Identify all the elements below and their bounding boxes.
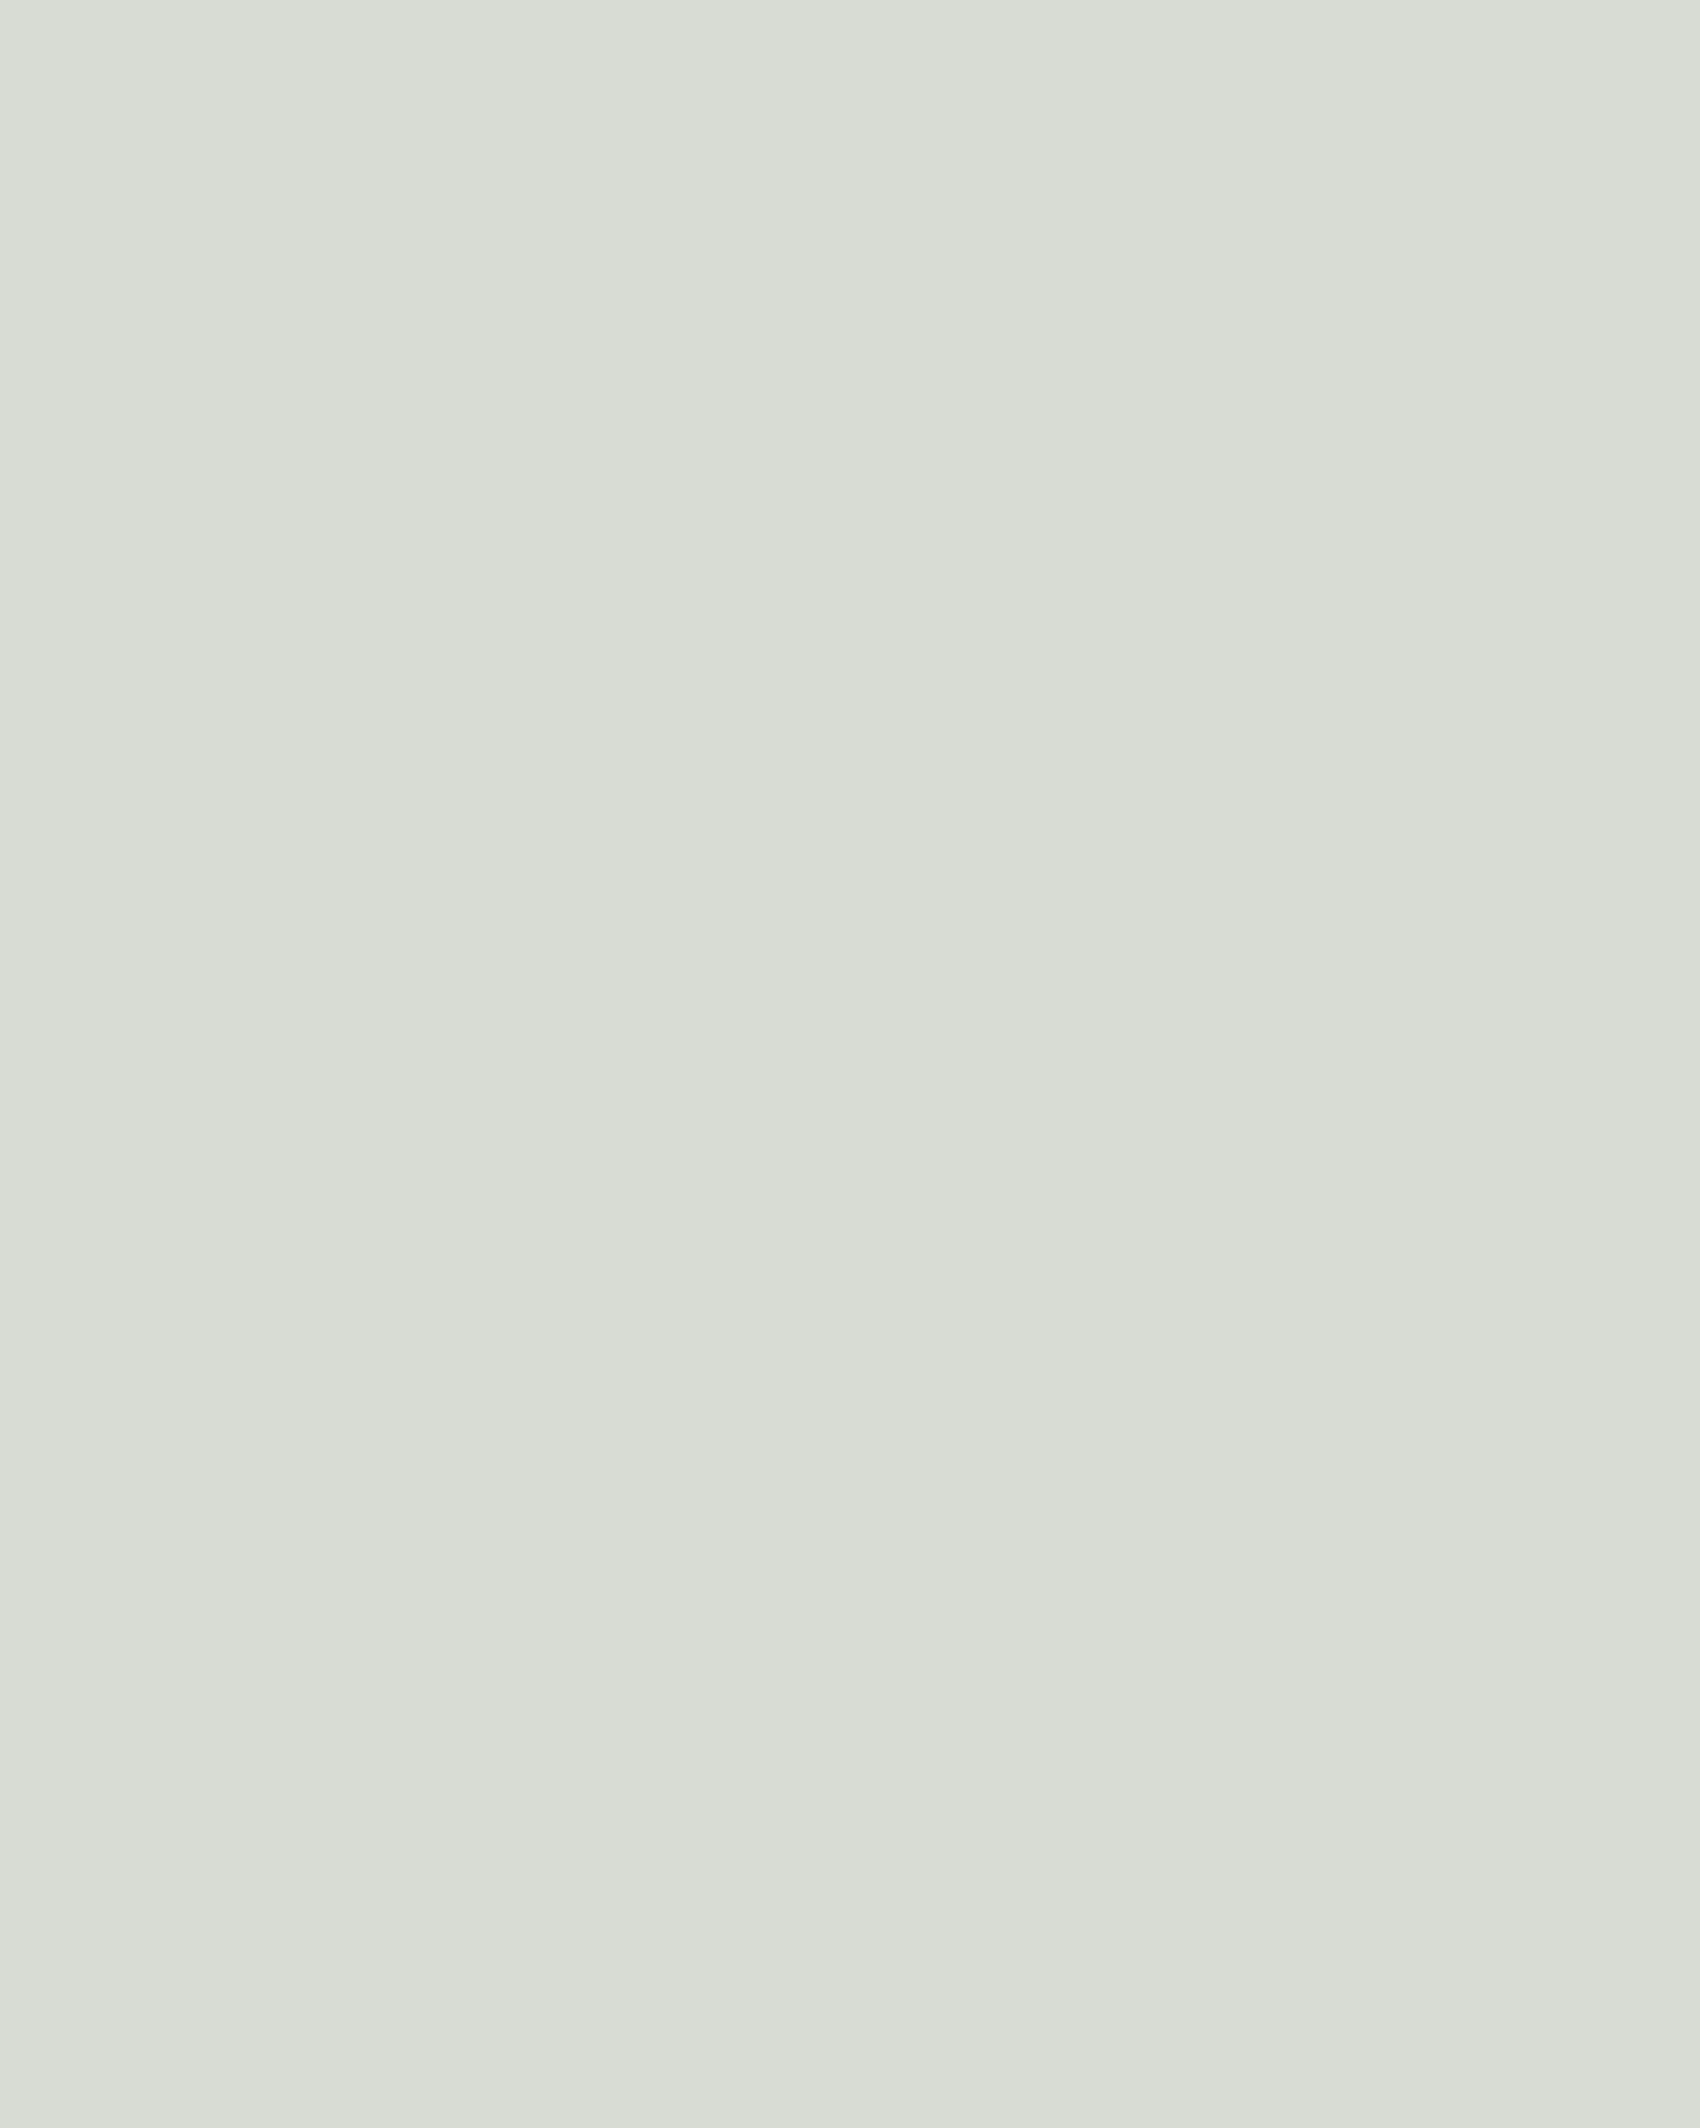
scanned-schematic-page <box>0 0 1700 2128</box>
schematic-canvas <box>0 0 1700 2128</box>
